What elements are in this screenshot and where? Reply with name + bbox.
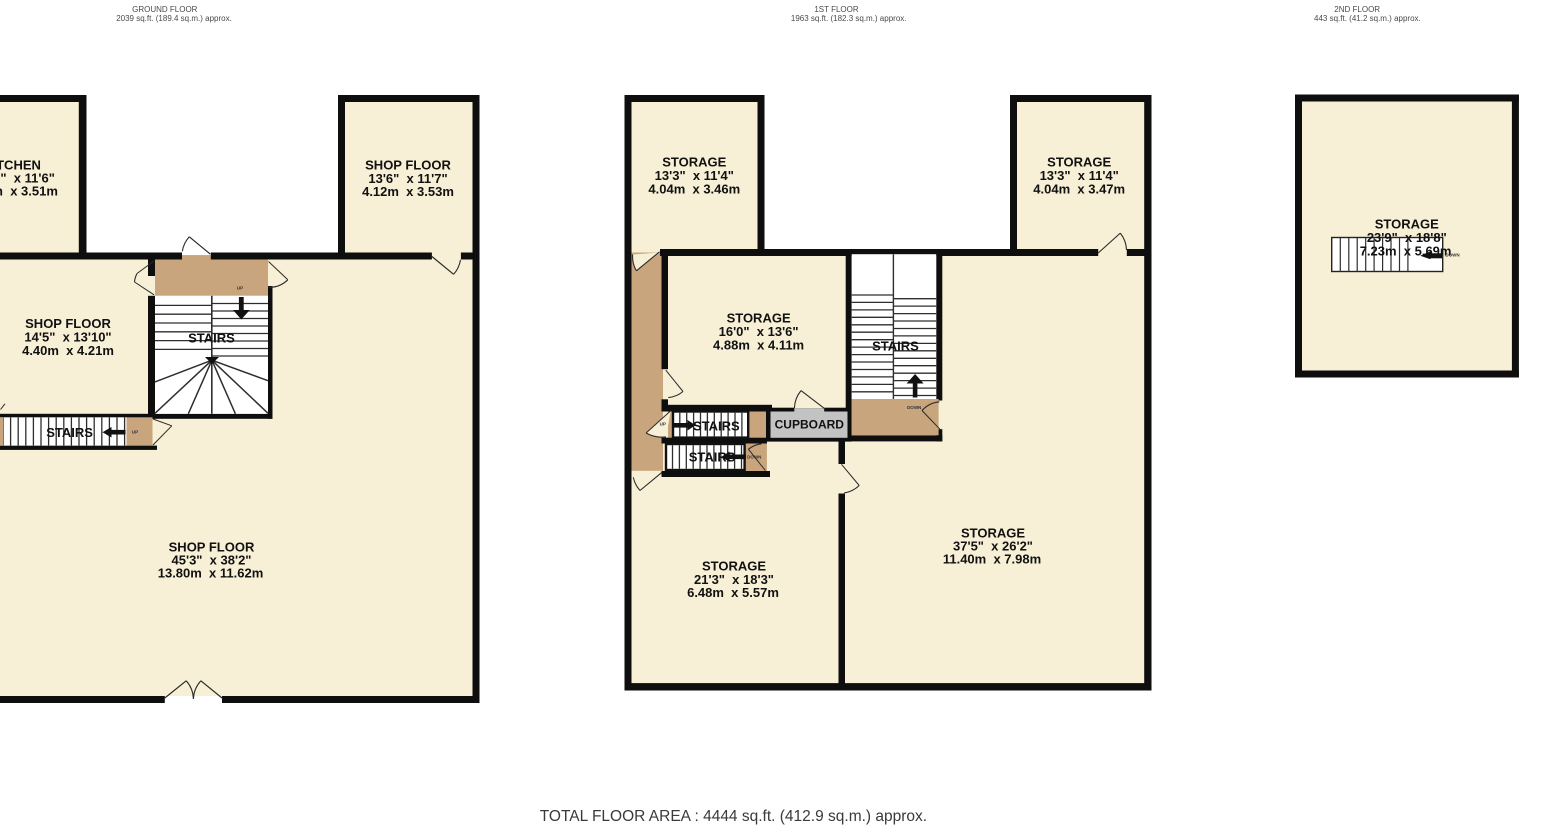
svg-text:1963 sq.ft. (182.3 sq.m.) appr: 1963 sq.ft. (182.3 sq.m.) approx. — [791, 14, 907, 23]
svg-text:UP: UP — [237, 286, 243, 291]
svg-text:4.04m x 3.46m: 4.04m x 3.46m — [648, 181, 740, 196]
svg-text:4.40m x 4.21m: 4.40m x 4.21m — [22, 343, 114, 358]
svg-text:STAIRS: STAIRS — [188, 331, 235, 346]
svg-text:2039 sq.ft. (189.4 sq.m.) appr: 2039 sq.ft. (189.4 sq.m.) approx. — [116, 14, 232, 23]
svg-text:4.12m x 3.53m: 4.12m x 3.53m — [362, 184, 454, 199]
svg-text:GROUND FLOOR: GROUND FLOOR — [132, 5, 198, 14]
svg-text:3.60m x 3.51m: 3.60m x 3.51m — [0, 183, 58, 198]
svg-text:TOTAL FLOOR AREA : 4444 sq.ft.: TOTAL FLOOR AREA : 4444 sq.ft. (412.9 sq… — [540, 808, 927, 825]
svg-text:CUPBOARD: CUPBOARD — [775, 417, 845, 431]
svg-text:6.48m x 5.57m: 6.48m x 5.57m — [687, 585, 779, 600]
svg-text:UP: UP — [660, 422, 666, 427]
svg-text:443 sq.ft. (41.2 sq.m.) approx: 443 sq.ft. (41.2 sq.m.) approx. — [1314, 14, 1421, 23]
svg-text:13.80m x 11.62m: 13.80m x 11.62m — [158, 565, 264, 580]
svg-text:11.40m x 7.98m: 11.40m x 7.98m — [943, 552, 1041, 567]
svg-text:DOWN: DOWN — [907, 405, 921, 410]
svg-text:4.04m x 3.47m: 4.04m x 3.47m — [1033, 181, 1125, 196]
svg-text:STAIRS: STAIRS — [872, 339, 919, 354]
svg-text:STAIRS: STAIRS — [46, 425, 93, 440]
svg-text:DOWN: DOWN — [1445, 252, 1459, 257]
svg-text:UP: UP — [132, 430, 138, 435]
svg-text:1ST FLOOR: 1ST FLOOR — [814, 5, 859, 14]
svg-text:4.88m x 4.11m: 4.88m x 4.11m — [713, 337, 804, 352]
svg-text:2ND FLOOR: 2ND FLOOR — [1334, 5, 1380, 14]
svg-text:STAIRS: STAIRS — [693, 419, 740, 434]
